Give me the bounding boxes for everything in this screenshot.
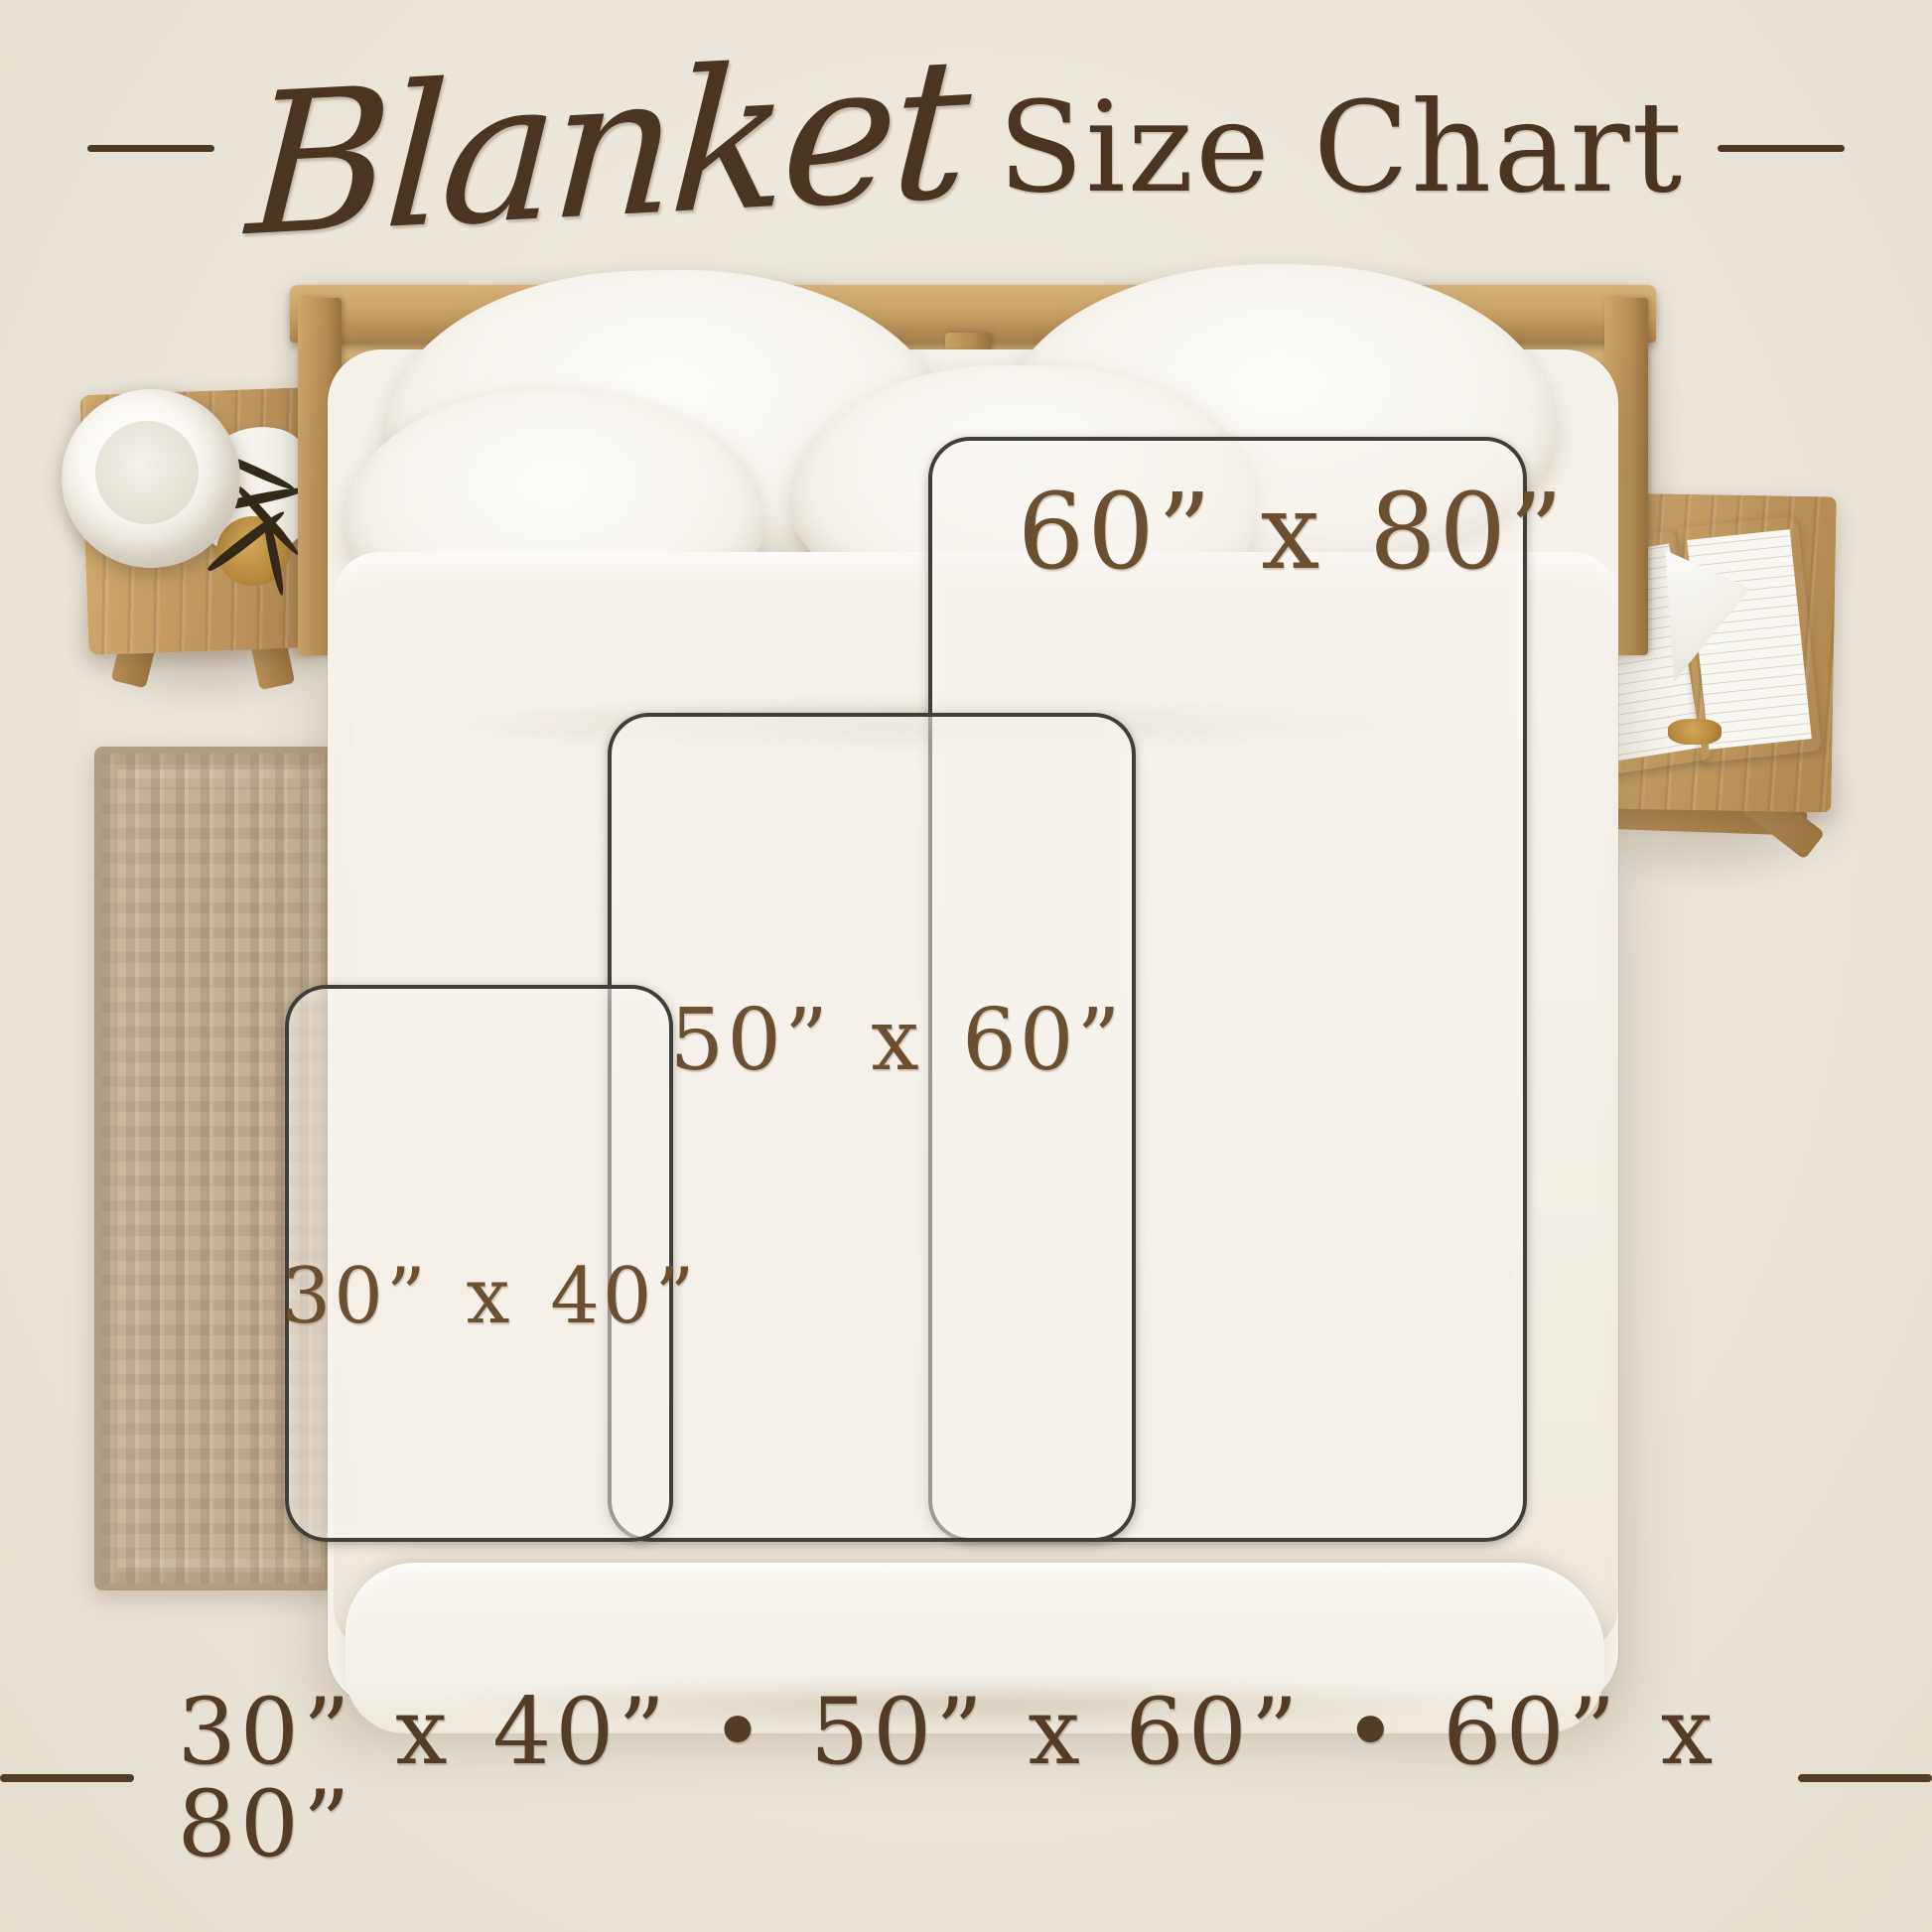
lamp-shade-top xyxy=(95,421,199,524)
size-rect-30x40: 30” x 40” xyxy=(285,985,673,1542)
size-label-30x40: 30” x 40” xyxy=(282,1258,698,1335)
title-dash-right xyxy=(1718,145,1845,152)
title-text: Size Chart xyxy=(998,85,1684,210)
size-label-50x60: 50” x 60” xyxy=(670,998,1124,1083)
footer-sizes-text: 30” x 40” • 50” x 60” • 60” x 80” xyxy=(178,1686,1755,1870)
blanket-size-chart: Blanket Size Chart 60” x 80” 50” x 60 xyxy=(0,0,1932,1932)
size-rect-50x60: 50” x 60” xyxy=(608,713,1136,1542)
footer-dash-left xyxy=(0,1774,134,1782)
size-label-60x80: 60” x 80” xyxy=(1018,480,1566,585)
title: Blanket Size Chart xyxy=(0,34,1932,262)
footer: 30” x 40” • 50” x 60” • 60” x 80” xyxy=(0,1704,1932,1853)
footer-dash-right xyxy=(1798,1774,1932,1782)
title-dash-left xyxy=(87,145,214,152)
title-script-word: Blanket xyxy=(243,32,969,265)
book-ribbon xyxy=(1668,719,1722,745)
